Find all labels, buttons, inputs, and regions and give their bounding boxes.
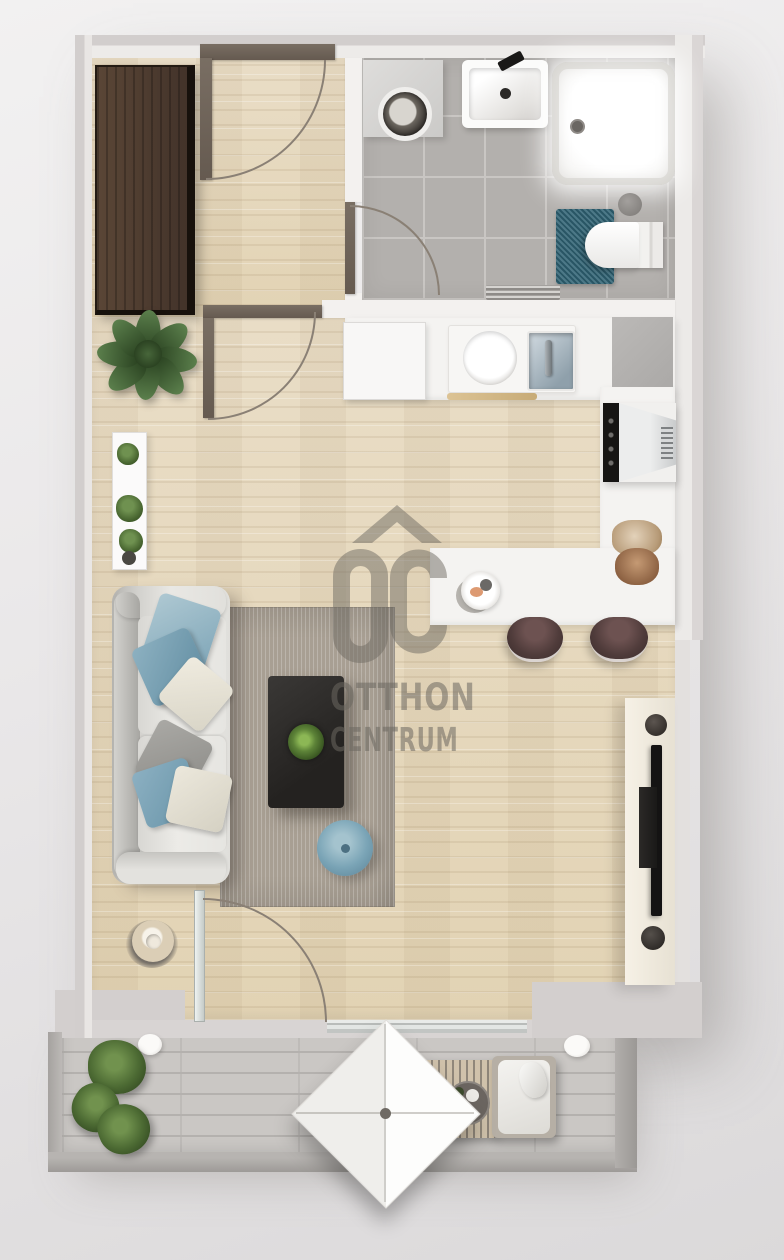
small-plant [119, 529, 143, 553]
wall-top [75, 35, 705, 58]
drain [500, 88, 511, 99]
gray-mat [612, 317, 673, 387]
entrance-door-header [200, 44, 335, 60]
shower-drain [570, 119, 585, 134]
cutting-board [447, 393, 537, 400]
washbasin [462, 60, 548, 128]
shower-tray [552, 62, 675, 185]
food-dark [480, 579, 492, 591]
coffee-table [268, 676, 344, 808]
plant-core [134, 340, 162, 368]
bread-basket [612, 520, 662, 585]
wall-right-upper [675, 35, 703, 640]
basket-bottom [615, 548, 659, 585]
round-basin [463, 331, 517, 385]
speaker-bottom [641, 926, 665, 950]
bar-stool-right [590, 617, 648, 662]
plant-pot [122, 551, 136, 565]
planter-shelf [112, 432, 147, 570]
sofa [112, 586, 230, 884]
waste-bin [618, 193, 642, 216]
pillow-cream [165, 765, 234, 834]
bowl-center [146, 934, 161, 949]
media-box [639, 787, 657, 868]
small-plant [116, 495, 143, 522]
wall-right-lower [675, 640, 690, 985]
deck-light [564, 1035, 590, 1057]
pouf-button [341, 844, 350, 853]
large-plant [104, 312, 192, 396]
wall-middle [322, 300, 675, 318]
floorplan-render: OTTHON CENTRUM [0, 0, 784, 1260]
parasol [292, 1020, 478, 1206]
plate-with-food [456, 571, 500, 613]
balcony-parapet-left [48, 1032, 62, 1172]
balcony-parapet-right [615, 1032, 637, 1168]
bar-stool-left [507, 617, 563, 662]
small-plant [117, 443, 139, 465]
decor-bowl [126, 918, 178, 968]
washer-drum [378, 87, 432, 141]
appliance-control-panel [603, 403, 619, 482]
deck-light [138, 1034, 162, 1055]
towel-rail [486, 285, 560, 300]
washing-machine [363, 60, 443, 137]
wall-block-bottom-right [532, 982, 702, 1038]
wall-hall-bathroom [345, 58, 362, 202]
sofa-back [114, 592, 140, 878]
speaker-top [645, 714, 667, 736]
kitchen-cabinet [343, 322, 426, 400]
kitchen-sink-unit [448, 325, 576, 393]
toilet-bowl [585, 222, 639, 268]
wardrobe [95, 65, 195, 315]
parasol-hub [380, 1108, 391, 1119]
blue-pouf [317, 820, 373, 876]
toilet [585, 222, 663, 268]
wall-left [75, 35, 92, 1038]
faucet-icon [545, 340, 552, 376]
tv-board [625, 698, 675, 985]
sofa-armrest-bottom [116, 852, 226, 884]
lounge-chair [492, 1056, 556, 1138]
appliance-grille [661, 427, 673, 459]
table-plant [288, 724, 324, 760]
built-in-appliance [603, 403, 676, 482]
